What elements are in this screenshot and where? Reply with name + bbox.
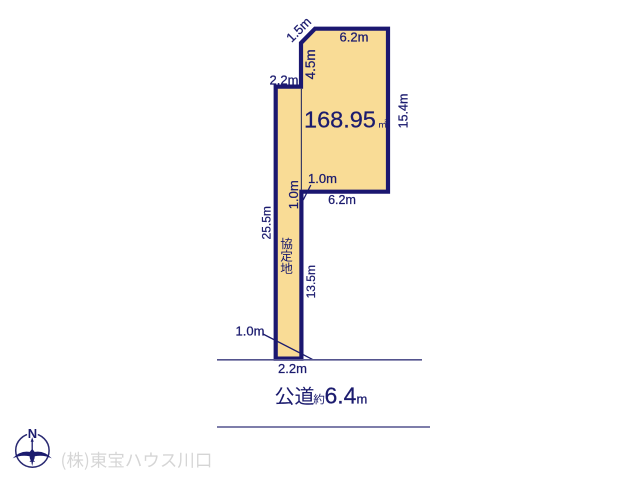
svg-text:1.0m: 1.0m — [308, 171, 337, 186]
svg-text:4.5m: 4.5m — [303, 49, 318, 79]
svg-text:6.4m: 6.4m — [325, 383, 368, 409]
svg-text:1.0m: 1.0m — [286, 180, 301, 209]
svg-text:6.2m: 6.2m — [328, 193, 356, 207]
svg-text:168.95: 168.95 — [304, 107, 376, 133]
svg-text:1.0m: 1.0m — [236, 324, 265, 339]
svg-text:13.5m: 13.5m — [304, 265, 318, 298]
svg-text:15.4m: 15.4m — [397, 94, 411, 129]
svg-text:25.5m: 25.5m — [260, 206, 274, 239]
svg-text:2.2m: 2.2m — [278, 361, 307, 376]
svg-text:6.2m: 6.2m — [340, 29, 369, 44]
svg-text:2.2m: 2.2m — [270, 72, 299, 87]
